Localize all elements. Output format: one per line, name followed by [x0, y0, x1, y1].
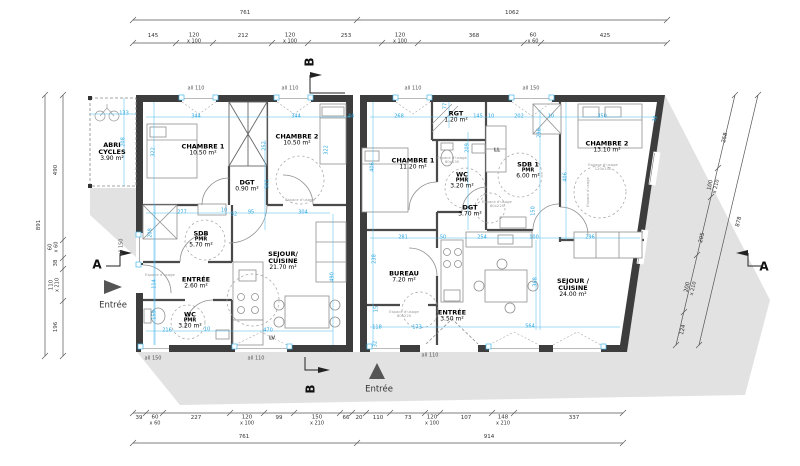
floor-plan: 7611062 145120x 100212120x 100253120x 10… [0, 0, 800, 466]
entrance-label: Entrée [365, 386, 393, 395]
entrance-label: Entrée [99, 302, 127, 311]
entrance-labels: EntréeEntrée [0, 0, 800, 466]
